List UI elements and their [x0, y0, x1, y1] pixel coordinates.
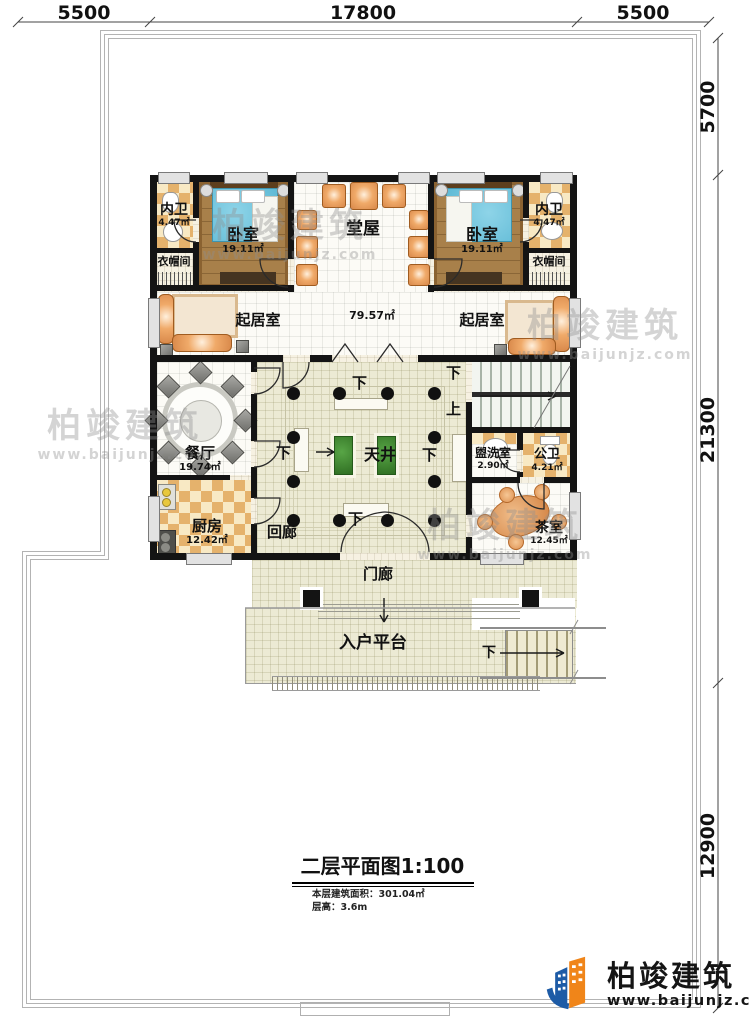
brand-building-icon — [543, 952, 601, 1018]
window — [158, 172, 190, 184]
title-underline — [292, 882, 474, 884]
label-platform: 入户平台 — [308, 634, 438, 654]
porch-post — [303, 590, 320, 607]
label-cloak-right: 衣帽间 — [527, 256, 571, 269]
stove-burner — [161, 543, 170, 552]
room-name: 餐厅 — [185, 445, 215, 462]
title-area-line: 本层建筑面积：301.04㎡ — [312, 886, 425, 900]
label-tearoom: 茶室 12.45㎡ — [524, 520, 574, 546]
marker-down: 下 — [422, 444, 437, 465]
hall-chair — [296, 264, 318, 286]
room-name: 卧室 — [227, 226, 259, 244]
room-name: 盥洗室 — [475, 447, 511, 461]
dim-top-center: 17800 — [323, 2, 403, 24]
hall-chair — [408, 236, 430, 258]
room-name: 公卫 — [534, 448, 560, 463]
room-name: 堂屋 — [346, 220, 380, 240]
wall-seg — [428, 285, 577, 291]
wall-seg — [288, 175, 294, 259]
dim-top-left: 5500 — [49, 2, 119, 24]
wall-seg — [466, 433, 472, 515]
room-name: 回廊 — [267, 524, 297, 541]
brand-url: www.baijunjz.com — [607, 993, 750, 1009]
tv-bench — [220, 272, 276, 284]
room-name: 起居室 — [235, 312, 280, 329]
dim-right-5700: 5700 — [697, 77, 719, 137]
label-bath-right: 内卫 4.47㎡ — [526, 202, 572, 228]
wall-seg — [310, 355, 332, 362]
porch-steps — [318, 598, 520, 624]
window — [437, 172, 485, 184]
label-bedroom-left: 卧室 19.11㎡ — [213, 226, 273, 256]
room-area: 12.42㎡ — [186, 535, 228, 547]
pillow — [216, 190, 240, 203]
window — [540, 172, 573, 184]
wall-seg — [251, 362, 257, 372]
window — [569, 298, 581, 348]
tea-stool — [477, 514, 493, 530]
wall-bottom-left — [150, 553, 340, 560]
wall-seg — [251, 394, 257, 441]
label-hall-area: 79.57㎡ — [340, 310, 404, 323]
label-kitchen: 厨房 12.42㎡ — [175, 518, 239, 547]
room-name: 厨房 — [192, 518, 222, 535]
label-bedroom-right: 卧室 19.11㎡ — [452, 226, 512, 256]
stair-center-rail — [472, 392, 570, 397]
window — [186, 553, 232, 565]
wall-seg — [529, 248, 570, 253]
room-area: 19.11㎡ — [461, 244, 503, 256]
stove-burner — [161, 533, 170, 542]
room-name: 内卫 — [535, 202, 563, 218]
platform-step-strip — [272, 676, 540, 691]
room-name: 门廊 — [363, 566, 393, 583]
wall-seg — [150, 355, 283, 362]
room-area: 12.45㎡ — [530, 536, 567, 546]
label-hall: 堂屋 — [335, 220, 391, 240]
brand-text-block: 柏竣建筑 www.baijunjz.com — [607, 961, 750, 1009]
wall-seg — [466, 537, 472, 560]
hall-chair — [322, 184, 346, 208]
hall-chair — [382, 184, 406, 208]
wardrobe-hatch — [532, 272, 568, 285]
room-name: 内卫 — [160, 202, 188, 218]
window — [480, 553, 524, 565]
label-living-left: 起居室 — [222, 312, 294, 329]
hall-side-table — [297, 210, 317, 230]
column — [428, 475, 441, 488]
column — [381, 387, 394, 400]
room-area: 4.47㎡ — [158, 218, 189, 228]
title-height-line: 层高：3.6m — [312, 899, 367, 913]
wall-seg — [466, 477, 520, 483]
living-left-sofa — [172, 334, 232, 352]
hall-chair — [408, 264, 430, 286]
room-name: 衣帽间 — [158, 256, 191, 269]
room-name: 入户平台 — [339, 634, 407, 654]
label-washroom: 盥洗室 2.90㎡ — [468, 447, 518, 471]
brand-logo: 柏竣建筑 www.baijunjz.com — [543, 950, 748, 1020]
marker-down: 下 — [276, 442, 291, 463]
wall-seg — [157, 248, 193, 253]
marker-down-stair: 下 — [446, 362, 461, 383]
brand-name: 柏竣建筑 — [607, 961, 750, 993]
column — [428, 514, 441, 527]
hall-side-table — [409, 210, 429, 230]
room-area: 19.74㎡ — [179, 462, 221, 474]
kitchen-knob — [162, 488, 171, 497]
dim-right-12900: 12900 — [697, 811, 719, 881]
pillow — [484, 190, 508, 203]
room-name: 茶室 — [535, 520, 563, 536]
tea-stool — [499, 487, 515, 503]
column — [287, 475, 300, 488]
wall-seg — [157, 475, 230, 480]
room-area: 2.90㎡ — [477, 461, 508, 471]
courtyard-bench — [334, 398, 388, 410]
tea-stool — [534, 484, 550, 500]
column — [333, 387, 346, 400]
wall-seg — [251, 467, 257, 498]
label-living-right: 起居室 — [446, 312, 518, 329]
label-bath-left: 内卫 4.47㎡ — [151, 202, 197, 228]
room-name: 天井 — [364, 446, 396, 464]
tea-stool — [508, 534, 524, 550]
porch-post — [522, 590, 539, 607]
hall-chair — [296, 236, 318, 258]
column — [428, 431, 441, 444]
label-cloak-left: 衣帽间 — [153, 256, 195, 269]
room-area: 4.47㎡ — [533, 218, 564, 228]
label-corridor: 回廊 — [258, 524, 306, 541]
marker-down: 下 — [352, 372, 367, 393]
site-gate — [300, 1002, 450, 1016]
window — [296, 172, 328, 184]
window — [398, 172, 430, 184]
kitchen-knob — [162, 498, 171, 507]
room-area: 4.21㎡ — [531, 463, 562, 473]
label-toilet: 公卫 4.21㎡ — [524, 448, 570, 473]
room-name: 卧室 — [466, 226, 498, 244]
wall-seg — [418, 355, 577, 362]
side-table — [236, 340, 249, 353]
living-right-sofa — [508, 338, 556, 355]
column — [287, 387, 300, 400]
corridor-bench — [452, 434, 467, 482]
label-porch: 门廊 — [350, 566, 406, 583]
window — [224, 172, 268, 184]
pillow — [459, 190, 483, 203]
titleblock: 二层平面图1:100 — [290, 850, 475, 887]
floorplan-canvas: 5500 17800 5500 5700 21300 12900 — [0, 0, 750, 1025]
column — [333, 514, 346, 527]
label-courtyard: 天井 — [352, 446, 408, 464]
room-name: 衣帽间 — [533, 256, 566, 269]
marker-up-stair: 上 — [446, 398, 461, 419]
dining-table-center — [180, 400, 222, 442]
nightstand — [200, 184, 213, 197]
column — [381, 514, 394, 527]
pillow — [241, 190, 265, 203]
window — [148, 496, 160, 542]
marker-down: 下 — [348, 508, 363, 529]
exterior-stair — [505, 630, 573, 679]
wall-seg — [544, 477, 577, 483]
hall-table — [350, 182, 378, 210]
wardrobe-hatch — [158, 272, 193, 285]
dim-top-right: 5500 — [608, 2, 678, 24]
wall-seg — [150, 285, 294, 291]
wall-seg — [428, 175, 434, 259]
planter — [334, 436, 353, 475]
wall-seg — [251, 524, 257, 560]
column — [428, 387, 441, 400]
room-name: 起居室 — [459, 312, 504, 329]
wall-top — [150, 175, 577, 182]
tv-bench — [446, 272, 502, 284]
room-area: 19.11㎡ — [222, 244, 264, 256]
room-area: 79.57㎡ — [349, 310, 395, 323]
plan-title: 二层平面图1:100 — [290, 850, 475, 879]
dim-right-21300: 21300 — [697, 395, 719, 465]
window — [148, 298, 160, 348]
marker-down-exterior: 下 — [482, 642, 496, 662]
label-dining: 餐厅 19.74㎡ — [165, 445, 235, 474]
